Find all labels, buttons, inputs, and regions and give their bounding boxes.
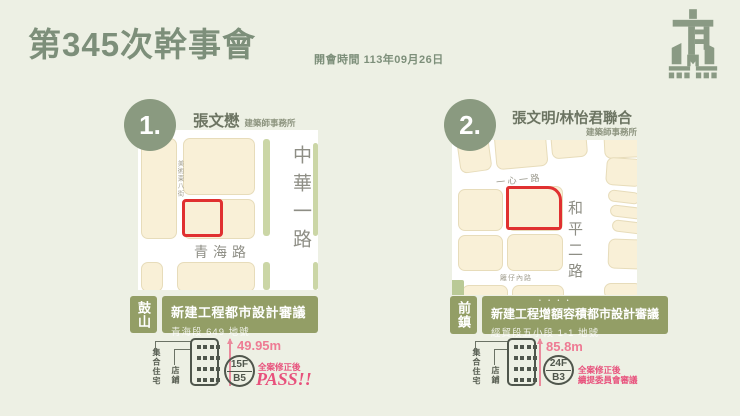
median-strip xyxy=(263,139,270,236)
map-block xyxy=(458,235,503,271)
review-box-1: 新建工程都市設計審議 青海段 649 地號 xyxy=(162,296,318,333)
case-2-number-badge: 2. xyxy=(444,99,496,151)
median-strip xyxy=(263,262,270,290)
building-logo-icon xyxy=(664,8,722,85)
floors-below: B3 xyxy=(552,371,565,383)
floors-below: B5 xyxy=(233,372,246,384)
bracket-line xyxy=(155,341,191,349)
building-icon xyxy=(190,338,219,386)
height-arrow-icon xyxy=(539,339,541,386)
use-label-residential: 集合住宅 xyxy=(151,348,162,386)
map-block xyxy=(550,140,588,160)
map-block xyxy=(603,140,637,159)
building-height: 49.95m xyxy=(237,338,281,353)
map-block xyxy=(604,283,637,295)
review-box-2: •••• 新建工程增額容積都市設計審議 經貿段五小段 1-1 地號 xyxy=(482,296,668,334)
use-label-shop: 店鋪 xyxy=(490,366,501,385)
road-label-cross: 青海路 xyxy=(194,242,251,262)
map-block xyxy=(141,262,163,290)
floors-badge-1: 15F B5 xyxy=(224,355,255,387)
map-block xyxy=(611,219,637,235)
district-name: 鼓山 xyxy=(134,301,153,329)
emphasis-dots: •••• xyxy=(539,298,576,304)
floors-badge-2: 24F B3 xyxy=(543,355,574,385)
building-windows xyxy=(514,345,518,349)
map-block xyxy=(607,238,637,269)
site-map-2: 和平二路 一心一路 籬仔內路 xyxy=(452,140,637,295)
map-block xyxy=(141,138,177,239)
map-block xyxy=(507,234,563,271)
lot-number: 經貿段五小段 1-1 地號 xyxy=(491,325,659,339)
floors-above: 15F xyxy=(227,359,252,372)
lot-number: 青海段 649 地號 xyxy=(171,324,309,338)
median-strip xyxy=(313,262,318,290)
case-1-number: 1. xyxy=(139,110,161,141)
site-outline xyxy=(506,186,562,230)
result-text: 續提委員會審議 xyxy=(578,374,638,386)
site-map-1: 中華一路 青海路 美術東八街 xyxy=(138,130,318,290)
road-label-main: 和平二路 xyxy=(564,200,585,284)
map-block xyxy=(605,157,637,187)
architect-suffix: 建築師事務所 xyxy=(245,118,296,128)
architect-name: 張文懋 xyxy=(193,113,240,130)
slide: 第345次幹事會 開會時間 113年09月26日 1. 張文懋建築師事務所 xyxy=(0,0,740,416)
building-windows xyxy=(197,345,201,349)
meeting-date: 113年09月26日 xyxy=(364,54,444,66)
site-outline xyxy=(182,199,223,237)
map-block xyxy=(177,262,255,290)
district-badge-2: 前鎮 xyxy=(450,296,477,334)
floors-above: 24F xyxy=(546,358,571,371)
green-strip xyxy=(452,280,464,295)
map-block xyxy=(493,140,548,170)
district-name: 前鎮 xyxy=(454,301,473,329)
building-icon xyxy=(507,338,536,386)
case-1-number-badge: 1. xyxy=(124,99,176,151)
case-1-architect: 張文懋建築師事務所 xyxy=(193,109,296,131)
road-label-minor: 籬仔內路 xyxy=(500,273,532,283)
use-label-residential: 集合住宅 xyxy=(471,348,482,386)
bracket-line xyxy=(475,341,508,349)
road-label-minor: 美術東八街 xyxy=(174,160,184,198)
review-title: 新建工程都市設計審議 xyxy=(171,302,309,321)
case-2-architect: 張文明/林怡君聯合 xyxy=(512,107,632,128)
bracket-line xyxy=(494,349,508,365)
meeting-time-label: 開會時間 xyxy=(314,54,360,66)
case-2-architect-suffix: 建築師事務所 xyxy=(512,126,637,138)
map-block xyxy=(458,189,503,231)
review-title: 新建工程增額容積都市設計審議 xyxy=(491,305,659,322)
map-block xyxy=(512,285,564,295)
use-label-shop: 店鋪 xyxy=(170,366,181,385)
case-2-number: 2. xyxy=(459,110,481,141)
result-pass: PASS!! xyxy=(256,369,312,390)
map-block xyxy=(607,189,637,205)
road-label-main: 中華一路 xyxy=(287,145,314,257)
building-height: 85.8m xyxy=(546,339,583,354)
map-block xyxy=(183,138,255,195)
page-title: 第345次幹事會 xyxy=(28,18,256,66)
map-block xyxy=(462,285,508,295)
bracket-line xyxy=(174,349,191,365)
map-block xyxy=(609,204,637,220)
district-badge-1: 鼓山 xyxy=(130,296,157,333)
meeting-time: 開會時間 113年09月26日 xyxy=(314,51,444,67)
